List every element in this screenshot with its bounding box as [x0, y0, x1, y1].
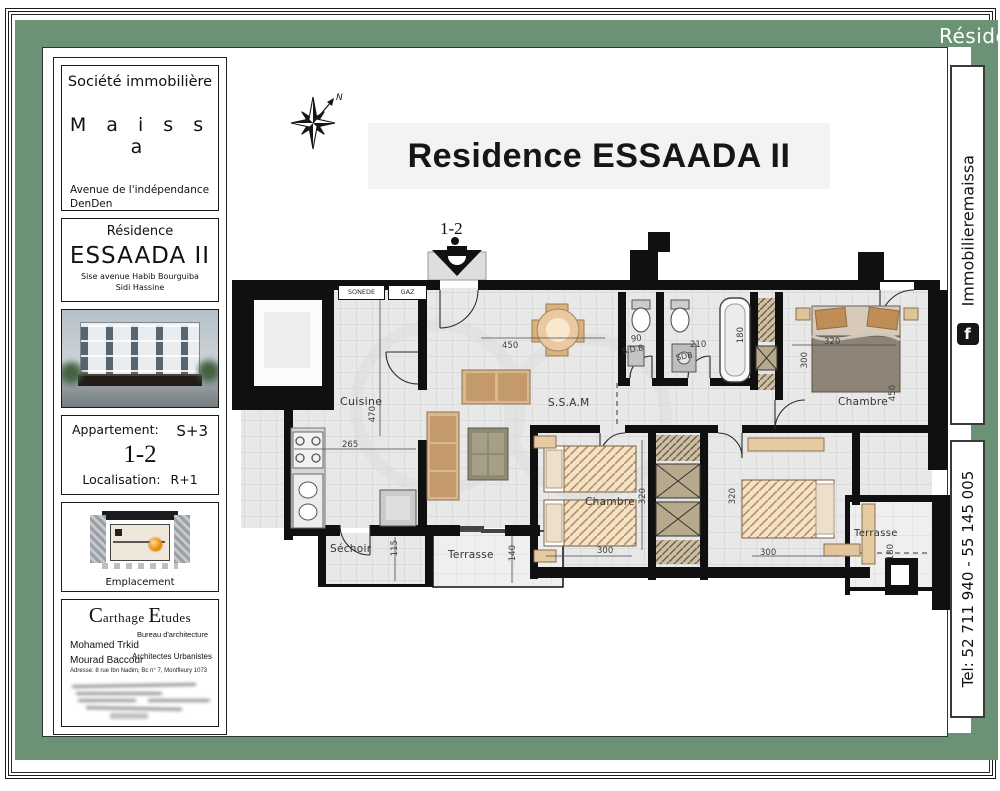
site-location-map — [90, 511, 190, 571]
sidebar-phone-box: Tel: 52 711 940 - 55 145 005 — [950, 440, 985, 718]
emplacement-caption: Emplacement — [62, 577, 218, 588]
dim-sdb2-210: 210 — [690, 340, 706, 350]
room-label-sechoir: Séchoir — [330, 543, 371, 555]
dim-chambre1-320: 320 — [824, 337, 840, 347]
phone-vertical-text: Tel: 52 711 940 - 55 145 005 — [959, 471, 977, 688]
residence-address-line1: Sise avenue Habib Bourguiba — [62, 272, 218, 283]
studio-initial-2: E — [148, 603, 161, 627]
architect-address: Adresse: 8 rue Ibn Nadim, Bc n° 7, Montf… — [70, 668, 207, 674]
dim-chambre1-300: 300 — [800, 352, 810, 368]
room-label-ssam: S.S.A.M — [548, 397, 590, 409]
architect-name-1: Mohamed Trkid — [70, 638, 143, 653]
floor-plan-drawing — [228, 212, 950, 620]
page-title: Residence ESSAADA II — [408, 137, 791, 176]
room-label-chambre1: Chambre — [838, 396, 888, 408]
dim-chambre1-450: 450 — [888, 385, 898, 401]
studio-initial-1: C — [89, 603, 103, 627]
architect-box: Carthage Etudes Bureau d'architecture Mo… — [61, 599, 219, 727]
dim-chambre3-320: 320 — [728, 488, 738, 504]
gaz-meter-box: GAZ — [388, 285, 427, 300]
residence-name: ESSAADA II — [62, 243, 218, 269]
dim-terrasse1-140: 140 — [508, 545, 518, 561]
architect-role: Architectes Urbanistes — [132, 652, 212, 661]
room-label-terrasse2: Terrasse — [854, 528, 898, 539]
banner-text: Résidence — [939, 24, 1000, 48]
apartment-box: Appartement: S+3 1-2 Localisation: R+1 — [61, 415, 219, 495]
company-address-line2: DenDen — [70, 198, 218, 211]
dim-ssam-450: 450 — [502, 341, 518, 351]
title-band: Residence ESSAADA II — [368, 123, 830, 189]
company-name: M a i s s a — [62, 114, 218, 158]
title-block-column: Société immobilière M a i s s a Avenue d… — [53, 57, 227, 735]
room-label-chambre2: Chambre — [585, 496, 635, 508]
company-address-line1: Avenue de l'indépendance — [70, 184, 218, 198]
residence-heading: Résidence — [62, 224, 218, 239]
dim-cuisine-470: 470 — [368, 406, 378, 422]
residence-box: Résidence ESSAADA II Sise avenue Habib B… — [61, 218, 219, 302]
facebook-icon[interactable]: f — [957, 323, 979, 345]
dim-sechoir-115: 115 — [390, 540, 400, 556]
tree-icon — [196, 356, 219, 386]
building-photo — [61, 309, 219, 409]
apartment-type: S+3 — [176, 422, 208, 440]
dim-tub-180: 180 — [736, 327, 746, 343]
company-heading: Société immobilière — [62, 74, 218, 90]
apartment-unit: 1-2 — [62, 441, 218, 469]
flyer-page: Résidence Société immobilière M a i s s … — [0, 0, 1000, 791]
blurred-stamp — [66, 680, 214, 724]
residence-address-line2: Sidi Hassine — [62, 283, 218, 294]
dim-chambre3-300: 300 — [760, 548, 776, 558]
entrance-unit-label: 1-2 — [440, 219, 463, 239]
dim-chambre2-320: 320 — [638, 488, 648, 504]
sidebar-brand-box: Immobilieremaissa f — [950, 65, 985, 425]
location-marker — [149, 538, 162, 551]
localisation-label: Localisation: — [82, 472, 160, 487]
studio-word-1: arthage — [103, 610, 149, 625]
apartment-label: Appartement: — [72, 422, 159, 440]
company-box: Société immobilière M a i s s a Avenue d… — [61, 65, 219, 211]
room-label-terrasse1: Terrasse — [448, 549, 494, 561]
studio-word-2: tudes — [161, 610, 191, 625]
building-photo-render — [62, 310, 218, 408]
brand-vertical-text: Immobilieremaissa — [958, 155, 977, 306]
localisation-value: R+1 — [171, 472, 198, 487]
dim-terrasse2-180: 180 — [886, 544, 896, 560]
tree-icon — [61, 358, 84, 388]
compass-icon — [286, 92, 341, 154]
sonede-meter-box: SONEDE — [338, 285, 385, 300]
emplacement-box: Emplacement — [61, 502, 219, 592]
dim-chambre2-300: 300 — [597, 546, 613, 556]
compass-north-label: N — [336, 93, 343, 103]
dim-cuisine-265: 265 — [342, 440, 358, 450]
